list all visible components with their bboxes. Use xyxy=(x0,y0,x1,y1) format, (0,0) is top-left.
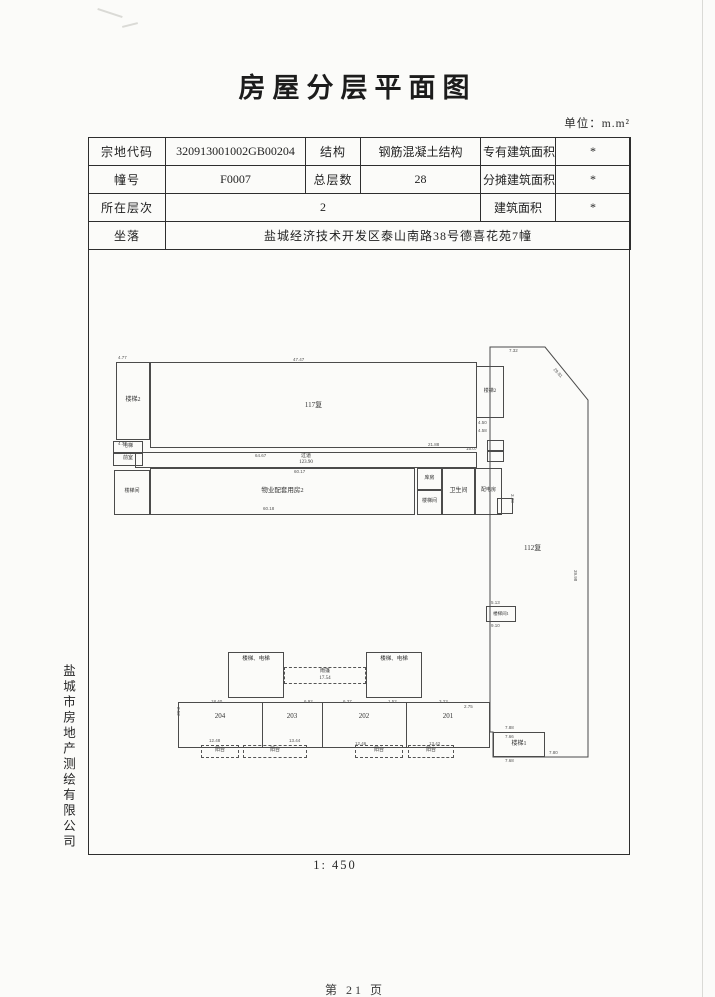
dimension-label: 7.32 xyxy=(509,348,518,353)
room-balcony-1: 阳台 xyxy=(201,745,239,758)
unit-number-202: 202 xyxy=(359,712,370,720)
room-storage: 库房 xyxy=(417,468,442,490)
dimension-label: 29.81 xyxy=(552,367,563,379)
dimension-label: 21.88 xyxy=(428,442,439,447)
room-stair-2-right: 楼梯2 xyxy=(476,366,504,418)
dimension-label: 39.98 xyxy=(573,570,578,581)
room-corridor: 过道 123.90 xyxy=(135,452,477,468)
dimension-label: 12.46 xyxy=(355,741,366,746)
dimension-label: 64.67 xyxy=(255,453,266,458)
scan-artifact-right-edge xyxy=(702,0,703,997)
dimension-label: 3.28 xyxy=(510,494,515,503)
dimension-label: 18.40 xyxy=(211,699,222,704)
dimension-label: 15.07 xyxy=(466,446,477,451)
dimension-label: 60.17 xyxy=(294,469,305,474)
room-stair-2-left: 楼梯2 xyxy=(116,362,150,440)
unit-divider xyxy=(262,702,263,748)
room-stairwell-mid: 楼梯间 xyxy=(417,490,442,515)
room-stairwell-left: 楼梯间 xyxy=(114,470,150,515)
dimension-label: 9.10 xyxy=(491,623,500,628)
dimension-label: 5.13 xyxy=(491,600,500,605)
room-canopy: 雨篷 17.54 xyxy=(284,667,366,684)
dimension-label: 47.47 xyxy=(293,357,304,362)
dimension-label: 4.77 xyxy=(118,441,127,446)
room-bathroom: 卫生间 xyxy=(442,468,475,515)
room-stair-elev-right: 楼梯、电梯 xyxy=(366,652,422,698)
dimension-label: 7.88 xyxy=(505,725,514,730)
dimension-label: 7.80 xyxy=(549,750,558,755)
page-number: 第 21 页 xyxy=(295,981,415,997)
room-stair-elev-left: 楼梯、电梯 xyxy=(228,652,284,698)
room-stairwell-1: 楼梯间1 xyxy=(486,606,516,622)
surveying-company-vertical-text: 盐城市房地产测绘有限公司 xyxy=(59,664,78,854)
dimension-label: 13.44 xyxy=(289,738,300,743)
dimension-label: 6.37 xyxy=(343,699,352,704)
map-scale: 1: 450 xyxy=(290,858,380,873)
area-label: 112复 xyxy=(524,543,541,553)
dimension-label: 4.77 xyxy=(118,355,127,360)
dimension-label: 7.66 xyxy=(505,734,514,739)
room-property-room: 物业配套用房2 xyxy=(150,468,415,515)
unit-number-203: 203 xyxy=(287,712,298,720)
dimension-label: 1.52 xyxy=(388,699,397,704)
room-small-box-a xyxy=(487,440,504,451)
unit-number-204: 204 xyxy=(215,712,226,720)
room-balcony-4: 阳台 xyxy=(408,745,454,758)
dimension-label: 2.75 xyxy=(464,704,473,709)
dimension-label: 12.48 xyxy=(209,738,220,743)
room-small-box-b xyxy=(487,451,504,462)
room-hall-117: 117复 xyxy=(150,362,477,448)
dimension-label: 4.50 xyxy=(478,420,487,425)
floor-plan: 楼梯2电梯前室楼梯间117复过道 123.90物业配套用房2库房楼梯间卫生间配电… xyxy=(0,0,715,997)
document-page: 房屋分层平面图 单位：m.m² 宗地代码 320913001002GB00204… xyxy=(0,0,715,997)
dimension-label: 6.92 xyxy=(304,699,313,704)
room-units-band xyxy=(178,702,490,748)
room-balcony-2: 阳台 xyxy=(243,745,307,758)
dimension-label: 3.23 xyxy=(439,699,448,704)
room-stair-1: 楼梯1 xyxy=(493,732,545,757)
unit-number-201: 201 xyxy=(443,712,454,720)
unit-divider xyxy=(322,702,323,748)
dimension-label: 60.18 xyxy=(263,506,274,511)
dimension-label: 13.42 xyxy=(429,741,440,746)
dimension-label: 7.68 xyxy=(505,758,514,763)
room-balcony-3: 阳台 xyxy=(355,745,403,758)
dimension-label: 2.52 xyxy=(176,707,181,716)
dimension-label: 4.58 xyxy=(478,428,487,433)
unit-divider xyxy=(406,702,407,748)
